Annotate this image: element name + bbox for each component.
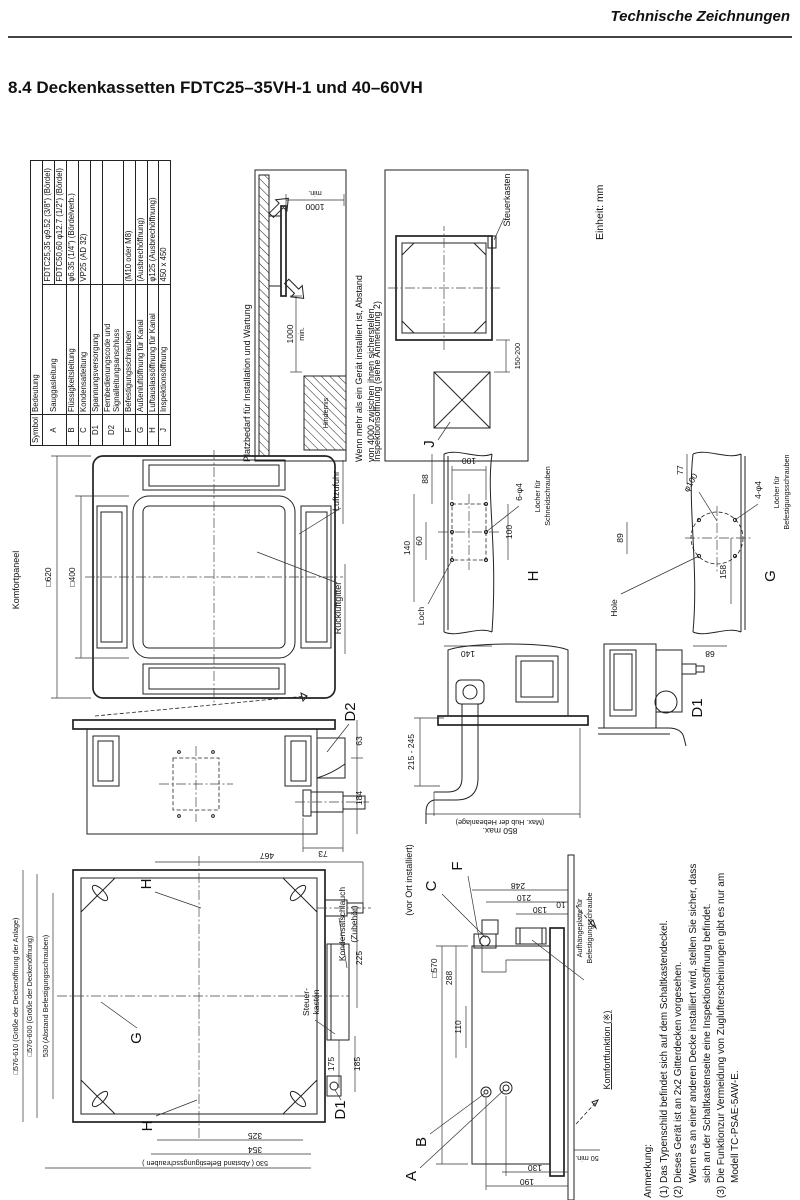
letter-d1-topview: D1 <box>332 1100 349 1119</box>
letter-a: A <box>403 1171 420 1181</box>
spec-4-phi4: 4-φ4 <box>753 481 763 499</box>
symbol-table-block: Symbol Bedeutung A Sauggasleitung FDTC25… <box>30 160 171 446</box>
dim-open-anlage: □576-610 (Größe der Deckenöffnung der An… <box>11 918 20 1075</box>
dim-570: □570 <box>429 958 439 978</box>
letter-h-top: H <box>138 879 155 890</box>
table-row: G Außenluftöffnung für Kanal (Ausbrechöf… <box>135 161 147 446</box>
table-row: C Kondensatleitung VP25 (AD 32) <box>78 161 90 446</box>
dim-88: 88 <box>420 474 430 484</box>
dim-158: 158 <box>718 565 728 579</box>
platzbedarf-diagram: Hindernis 1000 min. 1000 min. <box>254 168 348 462</box>
spec-6-phi4: 6-φ4 <box>514 483 524 501</box>
anmerkung-line-6: Modell TC-PSAE-5AW-E. <box>729 736 743 1198</box>
letter-c: C <box>423 880 440 891</box>
dim-215-245: 215 - 245 <box>406 734 416 770</box>
unit-note: Einheit: mm <box>594 148 606 240</box>
steuerkasten-line2: kasten <box>311 989 321 1014</box>
dim-850-note: (Max. Hub der Hebeanlage) <box>456 818 545 827</box>
platzbedarf-block: Platzbedarf für Installation und Wartung… <box>242 166 377 462</box>
dim-530-bottom: 530 ( Abstand Befestigungsschrauben ) <box>142 1159 268 1168</box>
spec-label-2: Befestigungsschrauben <box>782 454 791 529</box>
dim-min-right: min. <box>308 189 322 198</box>
dim-288: 288 <box>444 971 454 985</box>
komfortpaneel-label: Komfortpaneel <box>11 551 21 610</box>
vor-ort-label: (vor Ort installiert) <box>404 844 414 916</box>
dim-77: 77 <box>675 465 685 475</box>
platzbedarf-title: Platzbedarf für Installation und Wartung <box>242 166 252 462</box>
letter-b: B <box>413 1137 430 1147</box>
spec-label-1: Löcher für <box>772 475 781 508</box>
unit-side-view: (vor Ort installiert) C F 248 210 130 10… <box>398 828 648 1200</box>
dim-140: 140 <box>402 541 412 555</box>
spec-label-2: Schneidschrauben <box>543 466 552 526</box>
dim-190: 190 <box>520 1177 534 1187</box>
table-row: D1 Spannungsversorgung <box>90 161 102 446</box>
letter-h-bottom: H <box>139 1121 156 1132</box>
letter-g: G <box>762 570 779 582</box>
dim-248: 248 <box>511 881 525 891</box>
note-line: Wenn mehr als ein Gerät installiert ist,… <box>354 166 366 462</box>
meaning-col-header: Bedeutung <box>31 161 43 415</box>
inspektion-block: Inspektionsöffnung (siehe Anmerkung 2) S… <box>372 166 535 462</box>
hole-label: Hole <box>609 599 619 617</box>
dim-184: 184 <box>354 791 364 805</box>
anmerkung-title: Anmerkung: <box>642 736 656 1198</box>
inspektion-diagram: Steuerkasten J 150-200 <box>384 168 530 462</box>
inspektion-title: Inspektionsöffnung (siehe Anmerkung 2) <box>372 166 382 462</box>
drawing-page: Technische Zeichnungen 8.4 Deckenkassett… <box>0 0 800 1200</box>
dim-1000-left: 1000 <box>285 324 295 343</box>
dim-100-top: 100 <box>462 456 476 466</box>
dim-400: □400 <box>67 567 77 587</box>
dim-620: □620 <box>43 567 53 587</box>
hindernis-label: Hindernis <box>321 397 330 428</box>
letter-g: G <box>128 1032 145 1044</box>
page-header: Technische Zeichnungen <box>611 8 790 25</box>
rueckluftgitter-label: Rückluftgitter <box>333 582 343 635</box>
dim-10: 10 <box>556 900 566 910</box>
table-row: H Luftauslassöffnung für Kanal φ125 (Aus… <box>147 161 159 446</box>
komfortfunktion-label: Komfortfunktion (※) <box>602 1010 612 1089</box>
section-title: 8.4 Deckenkassetten FDTC25–35VH-1 und 40… <box>8 78 423 98</box>
dim-open: □576-600 (Größe der Deckenöffnung) <box>25 936 34 1056</box>
letter-d2: D2 <box>342 702 359 721</box>
symbol-col-header: Symbol <box>31 415 43 446</box>
anmerkung-block: Anmerkung: (1) Das Typenschild befindet … <box>642 736 743 1198</box>
d2-side-view: D2 63 184 73 <box>55 686 370 858</box>
unit-top-view: 467 □576-610 (Größe der Deckenöffnung de… <box>5 848 397 1200</box>
anmerkung-line-5: (3) Die Funktionzur Vermeidung von Zuglu… <box>715 736 729 1198</box>
dim-325: 325 <box>248 1131 262 1141</box>
anmerkung-line-3: Wenn es an einer anderen Decke installie… <box>687 736 701 1198</box>
luftzufuhr-label: Luftzufuhr <box>331 471 341 511</box>
dim-225: 225 <box>354 951 364 965</box>
dim-min-left: min. <box>297 327 306 341</box>
anmerkung-line-4: sich an der Schaltkastenseite eine Inspe… <box>701 736 715 1198</box>
symbol-table: Symbol Bedeutung A Sauggasleitung FDTC25… <box>30 160 171 446</box>
dim-130-top: 130 <box>533 905 547 915</box>
drain-lift-view: 215 - 245 (Max. Hub der Hebeanlage) 850 … <box>400 628 588 836</box>
kondensat-line2: (Zubehör) <box>349 905 359 942</box>
table-row: A Sauggasleitung FDTC25,35 φ9.52 (3/8") … <box>42 161 54 446</box>
dim-100-right: 100 <box>504 525 514 539</box>
dim-210: 210 <box>517 893 531 903</box>
dim-110: 110 <box>453 1020 463 1034</box>
table-row: J Inspektionsöffnung 450 x 450 <box>159 161 171 446</box>
kondensat-line1: Kondensatschlauch <box>337 887 347 961</box>
letter-d1: D1 <box>689 698 706 717</box>
dim-63: 63 <box>354 736 364 746</box>
steuerkasten-line1: Steuer- <box>301 988 311 1016</box>
dim-467: 467 <box>260 851 274 861</box>
dim-150-200: 150-200 <box>513 343 522 369</box>
h-knockout-view: 100 88 140 60 100 140 6-φ4 Löcher für Sc… <box>388 426 595 661</box>
table-row: B Flüssigkeitsleitung φ6.35 (1/4") (Börd… <box>66 161 78 446</box>
table-row: F Befestigungsschrauben (M10 oder M8) <box>123 161 135 446</box>
spec-label-1: Löcher für <box>533 479 542 512</box>
dim-50-min: 50 min. <box>575 1154 599 1163</box>
loch-label: Loch <box>416 607 426 626</box>
dim-185: 185 <box>352 1057 362 1071</box>
dim-530-left: 530 (Abstand Befestigungsschrauben) <box>41 935 50 1057</box>
anmerkung-line-1: (1) Das Typenschild befindet sich auf de… <box>658 736 672 1198</box>
panel-view: □620 □400 Komfortpaneel Luftzufuhr Rückl… <box>5 446 350 708</box>
header-rule <box>8 36 792 38</box>
dim-60: 60 <box>414 536 424 546</box>
dim-1000-right: 1000 <box>305 202 324 212</box>
letter-f: F <box>449 861 466 870</box>
dim-354: 354 <box>248 1145 262 1155</box>
anmerkung-line-2: (2) Dieses Gerät ist an 2x2 Gitterdecken… <box>672 736 686 1198</box>
dim-175: 175 <box>326 1057 336 1071</box>
g-knockout-view: φ100 77 4-φ4 Löcher für Befestigungsschr… <box>593 426 800 661</box>
dim-89: 89 <box>615 533 625 543</box>
table-row: D2 Fernbedienungscode und Signalleitungs… <box>102 161 123 446</box>
letter-h: H <box>525 571 542 582</box>
aufhaengeplatte-line2: Befestigungsschraube <box>585 892 594 963</box>
dim-130-bottom: 130 <box>528 1163 542 1173</box>
